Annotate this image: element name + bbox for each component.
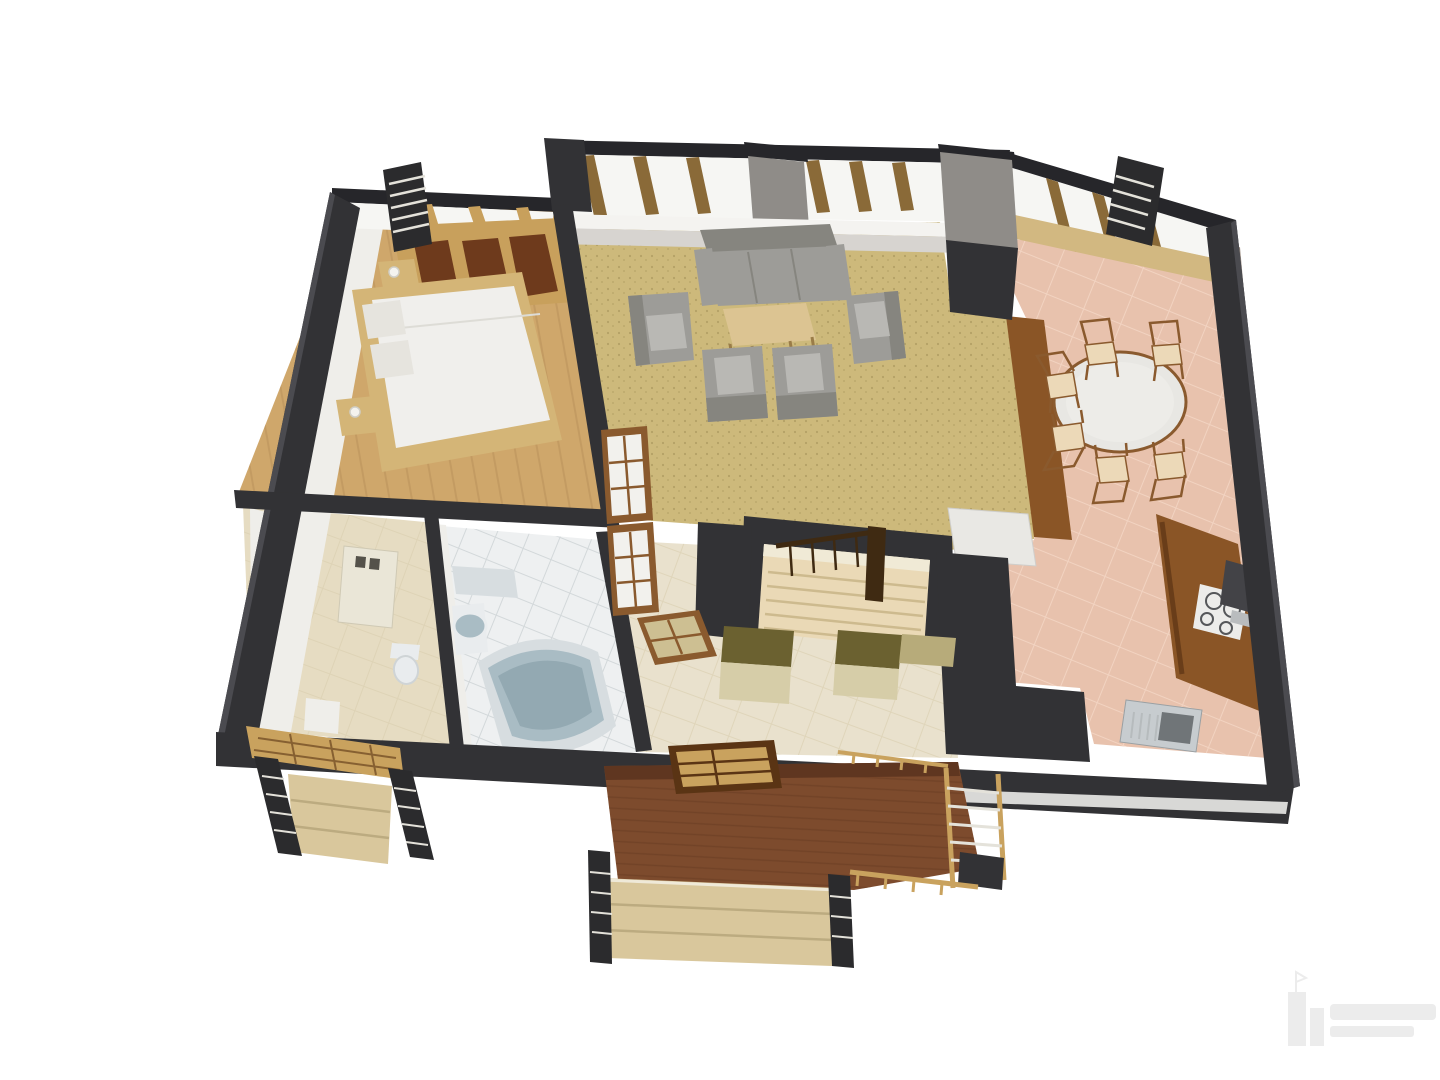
railing-frame (588, 850, 612, 964)
wall-living-dining-lower (946, 240, 1018, 320)
chair-seat (1046, 372, 1077, 399)
chair-seat (1152, 344, 1182, 366)
nightstand (378, 259, 420, 293)
armchair-seat (646, 313, 687, 351)
watermark-text-bar (1330, 1004, 1436, 1020)
closet-front (833, 664, 899, 700)
armchair-seat (854, 301, 890, 339)
water-heater (338, 546, 398, 628)
vent-icon (369, 558, 380, 570)
watermark-building-icon (1288, 992, 1306, 1046)
watermark-text-bar (1330, 1026, 1414, 1037)
armchair-back (706, 394, 768, 422)
closet-front (719, 662, 791, 704)
glazed-door-panel (601, 426, 653, 524)
pillow (362, 300, 406, 339)
living-dining-partition-face (940, 152, 1018, 250)
armchair-back (776, 392, 838, 420)
armchair-seat (714, 355, 754, 395)
door-slats (676, 747, 773, 787)
bathroom-shelf (452, 566, 518, 598)
coffee-table-top (723, 303, 816, 346)
terrace-door-open (668, 740, 782, 794)
entry-steps (602, 878, 838, 966)
terrace-deck-planks (604, 762, 980, 890)
chair-seat (1052, 423, 1085, 452)
sofa-seat (706, 246, 848, 306)
stair-newel-post (865, 526, 886, 602)
porch-slab (304, 698, 340, 734)
pillow (370, 340, 414, 379)
closet-top-beige (899, 634, 956, 667)
closet-top (835, 630, 902, 669)
living-northwest-corner-wall (544, 138, 592, 212)
railing-frame (828, 874, 854, 968)
vent-icon (355, 556, 366, 568)
closet-top (721, 626, 794, 667)
entry-step-railing-left (588, 850, 612, 964)
lamp-icon (350, 407, 360, 417)
glazed-door-panel (607, 522, 659, 616)
entry-step-railing-right (828, 874, 854, 968)
lamp-icon (389, 267, 399, 277)
washbasin (454, 613, 486, 639)
sink-basin (1158, 712, 1194, 744)
chair-seat (1154, 452, 1186, 480)
floor-plan-3d-render (0, 0, 1440, 1080)
armchair-seat (784, 353, 824, 393)
watermark-building-icon (1310, 1008, 1324, 1046)
chair-seat (1096, 456, 1129, 483)
side-steps (288, 774, 392, 864)
chair-seat (1085, 342, 1117, 365)
